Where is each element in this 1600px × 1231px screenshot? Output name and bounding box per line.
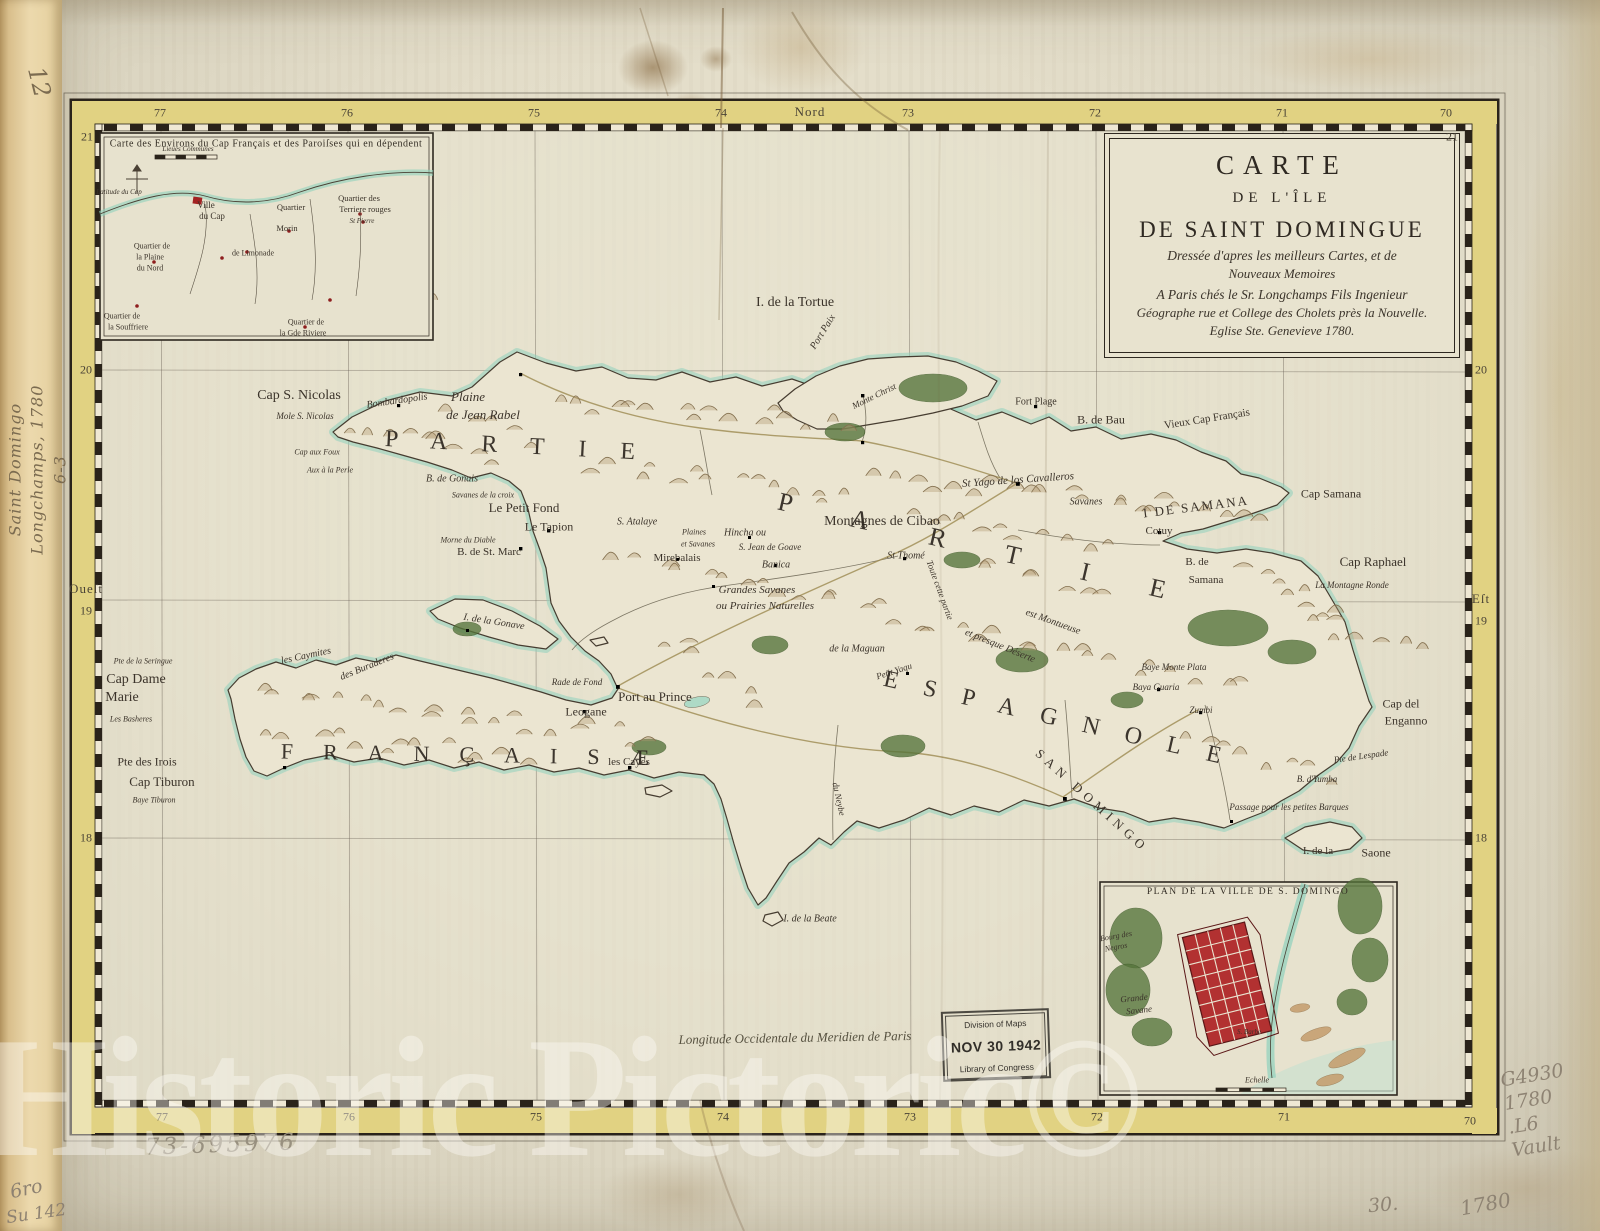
stamp-library-line: Library of Congress	[960, 1061, 1034, 1074]
map-title-line3: DE SAINT DOMINGUE	[1105, 217, 1459, 243]
inset-scale-bar	[1216, 1088, 1286, 1092]
spine-title-note: Saint Domingo Longchamps, 1780 6-3	[4, 250, 71, 690]
imprint-line: A Paris chés le Sr. Longchamps Fils Inge…	[1105, 287, 1459, 303]
map-subtitle: Dressée d'apres les meilleurs Cartes, et…	[1105, 248, 1459, 264]
stamp-division-line: Division of Maps	[964, 1018, 1027, 1030]
inset-plan-s-domingo	[1100, 878, 1397, 1095]
library-of-congress-stamp: Division of Maps NOV 30 1942 Library of …	[941, 1008, 1051, 1082]
scanned-historic-map: 12 Saint Domingo Longchamps, 1780 6-3 6r…	[0, 0, 1600, 1231]
map-title-line2: DE L'ÎLE	[1105, 190, 1459, 207]
title-cartouche: CARTE DE L'ÎLE DE SAINT DOMINGUE Dressée…	[1104, 133, 1460, 358]
imprint-line: Géographe rue et College des Cholets prè…	[1105, 305, 1459, 321]
stamp-date-line: NOV 30 1942	[951, 1036, 1042, 1055]
inset-cap-francais	[100, 133, 433, 340]
inset-scale-bar	[155, 155, 217, 159]
plate-number-note: 30.	[1367, 1193, 1399, 1218]
spine-note-line: 6-3	[49, 250, 71, 690]
spine-note-line: Saint Domingo	[4, 250, 26, 690]
binding-strip: 12 Saint Domingo Longchamps, 1780 6-3	[0, 0, 62, 1231]
catalog-number-note: 73-695976	[145, 1129, 298, 1160]
imprint-line: Eglise Ste. Genevieve 1780.	[1105, 323, 1459, 339]
map-subtitle: Nouveaux Memoires	[1105, 266, 1459, 282]
spine-number-note: 12	[22, 64, 57, 100]
map-title: CARTE	[1105, 150, 1459, 181]
spine-note-line: Longchamps, 1780	[27, 250, 49, 690]
